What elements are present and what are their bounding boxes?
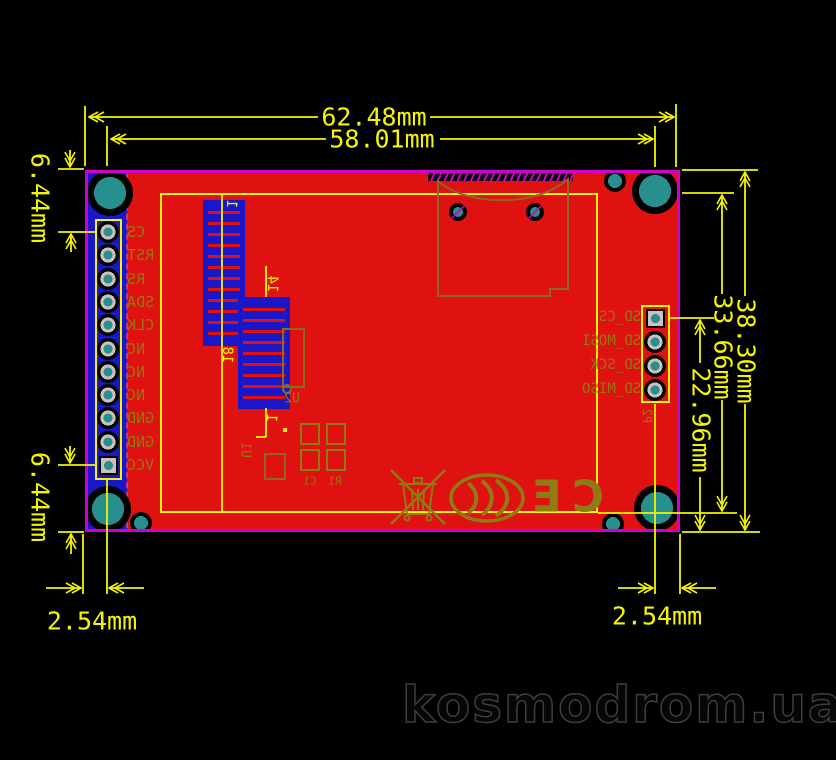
dim-top-pin-offset: 6.44mm	[26, 153, 55, 243]
dim-right-hole-offset: 2.54mm	[612, 602, 702, 631]
dim-left-hole-offset: 2.54mm	[47, 607, 137, 636]
fpc1-pin1-label: 1	[223, 200, 239, 208]
dim-bottom-pin-offset: 6.44mm	[26, 452, 55, 542]
fpc2-pin14-label: 14	[264, 276, 280, 293]
watermark: kosmodrom.ua	[402, 676, 836, 734]
fpc1-pin18-label: 18	[219, 347, 235, 364]
designator-p2: P2	[640, 409, 654, 423]
pcb-dimension-drawing: CSRSTRSSDACLKNCNCNCGNDGNDVCCSD_CSSD_MOSI…	[0, 0, 836, 760]
dim-sd-pin-offset: 22.96mm	[687, 367, 716, 472]
designator-u2: U2	[284, 392, 300, 407]
dim-header-span: 58.01mm	[329, 125, 434, 154]
designator-u1: U1	[238, 442, 253, 458]
ce-mark: CE	[522, 472, 604, 523]
fpc2-pin1-label: 1	[263, 414, 279, 422]
designator-r1: R1	[328, 475, 341, 488]
designator-c1: C1	[303, 475, 316, 488]
